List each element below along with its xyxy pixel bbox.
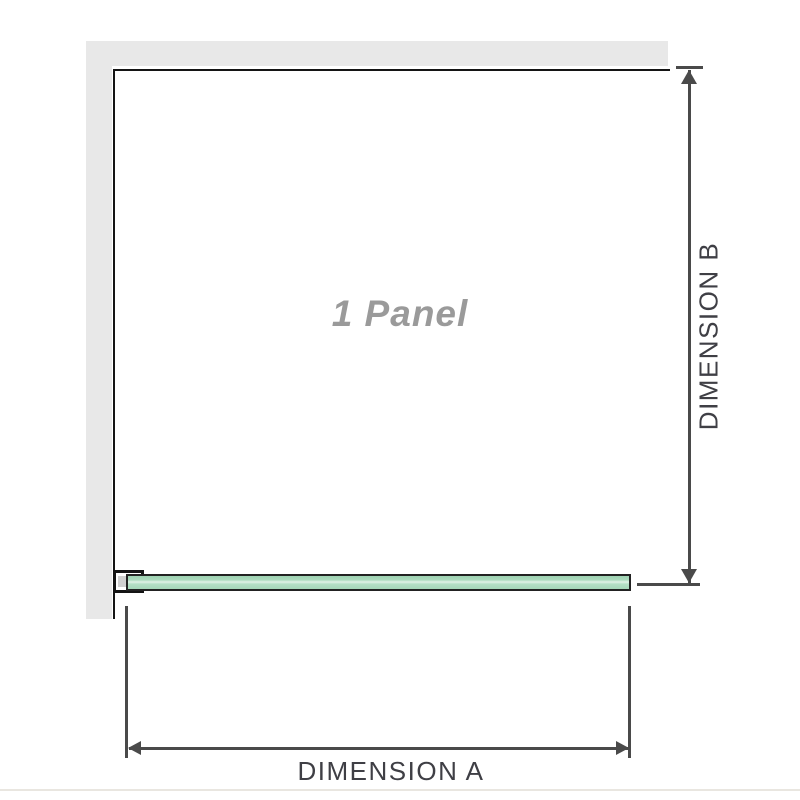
dimension-a-extension-left xyxy=(125,606,128,758)
panel-outline-left xyxy=(113,69,115,619)
dimension-b-arrow-down-icon xyxy=(681,569,697,583)
dimension-a-arrow-right-icon xyxy=(616,741,629,755)
panel-count-label: 1 Panel xyxy=(280,293,520,335)
dimension-a-arrow-left-icon xyxy=(128,741,141,755)
dimension-a-extension-right xyxy=(628,606,631,758)
dimension-diagram: 1 Panel DIMENSION B DIMENSION A xyxy=(0,0,800,800)
dimension-a-label: DIMENSION A xyxy=(298,756,485,787)
dimension-b-line xyxy=(688,70,691,584)
glass-panel-bar xyxy=(126,574,631,591)
dimension-b-label: DIMENSION B xyxy=(694,242,725,430)
wall-left xyxy=(86,41,112,619)
dimension-a-line xyxy=(129,747,629,750)
dimension-b-top-tick xyxy=(676,66,703,69)
dimension-b-bottom-tick xyxy=(637,583,700,586)
bottom-divider xyxy=(0,789,800,791)
wall-top xyxy=(86,41,668,66)
dimension-b-arrow-up-icon xyxy=(681,70,697,84)
panel-outline-top xyxy=(113,69,670,71)
